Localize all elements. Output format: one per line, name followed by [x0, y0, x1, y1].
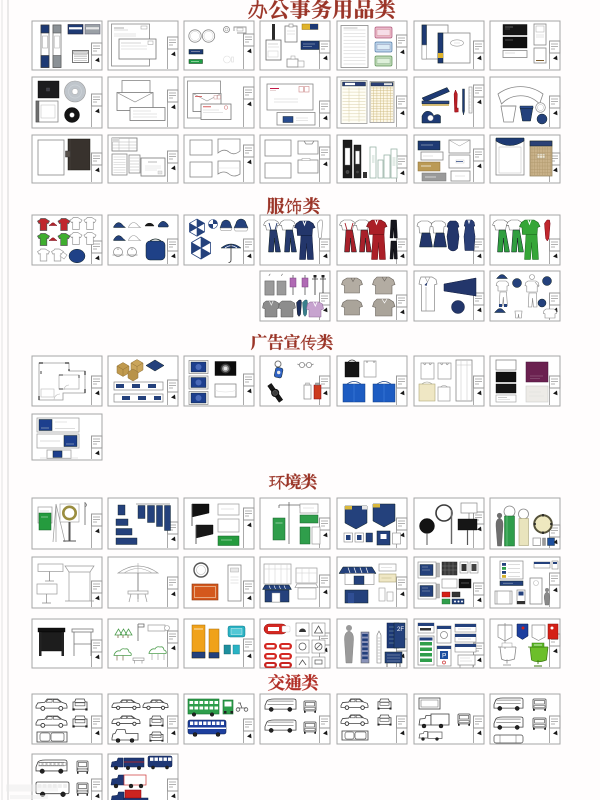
svg-text:P: P: [442, 653, 446, 660]
svg-text:2F: 2F: [397, 627, 404, 633]
